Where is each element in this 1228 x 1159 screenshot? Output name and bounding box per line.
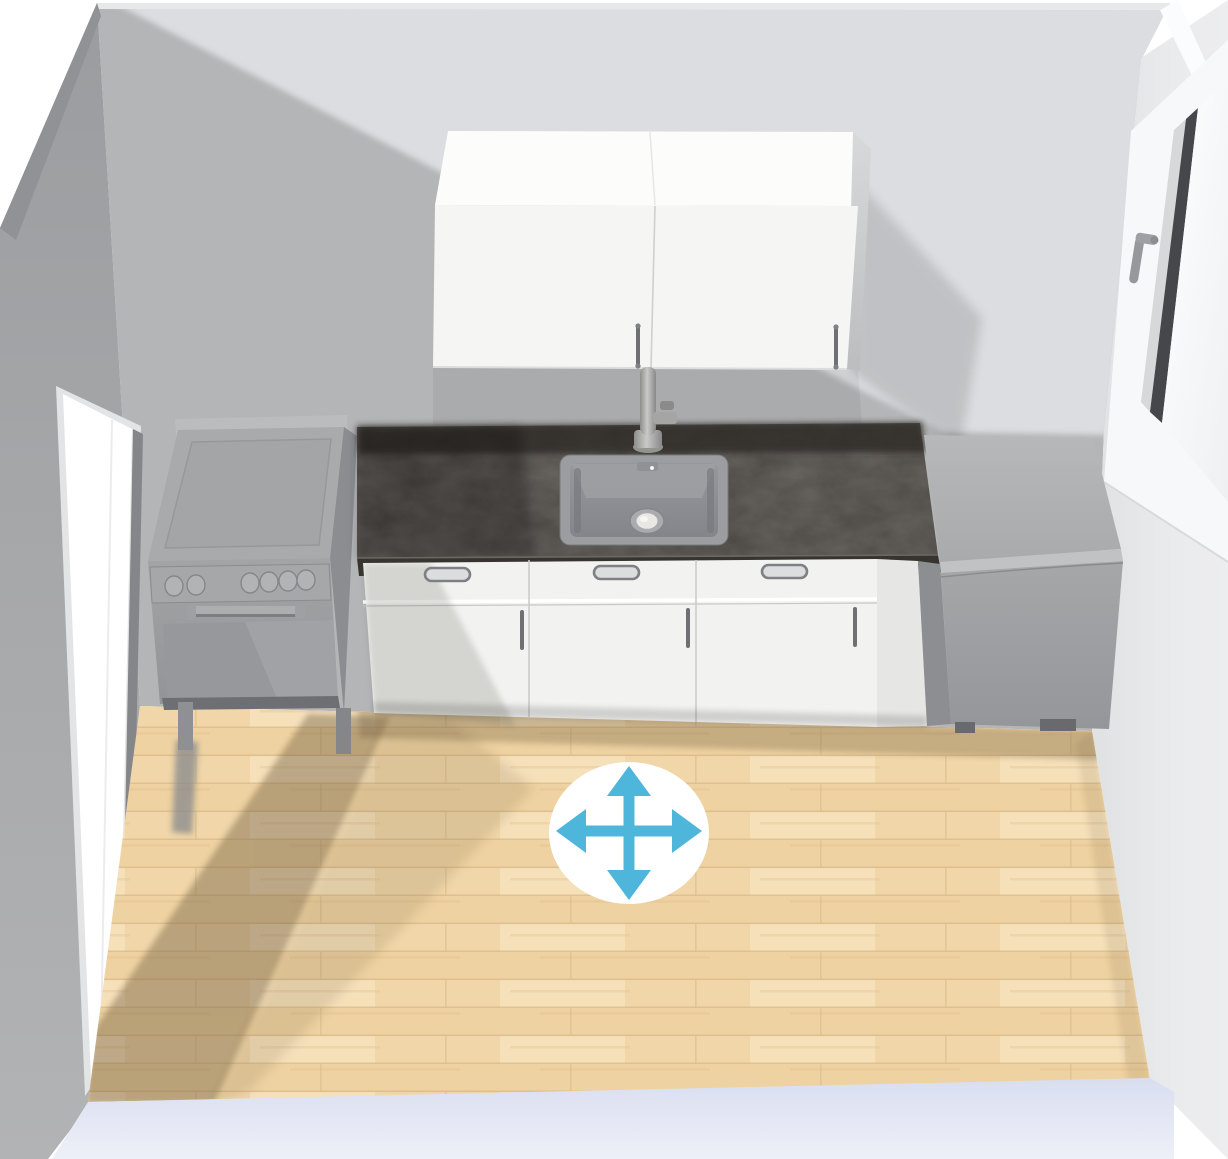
wall-cabinet-handle-right[interactable] (833, 324, 838, 369)
countertop-left-shade (357, 426, 536, 558)
wall-cabinet-front (433, 205, 858, 369)
control-knob (260, 572, 278, 592)
faucet-spout-arm (653, 412, 677, 424)
door-handle (520, 610, 524, 650)
range-cooktop-recess (165, 439, 331, 548)
faucet-column (640, 367, 656, 435)
wall-top-edge (96, 1, 1172, 10)
sink[interactable] (560, 455, 728, 545)
sink-overflow (637, 462, 658, 471)
sink-groove-right (707, 468, 714, 533)
control-knob (187, 575, 205, 595)
door-handle (686, 608, 690, 648)
range-leg-right (336, 708, 351, 754)
faucet-lever (660, 401, 674, 410)
refrigerator-foot-left (955, 722, 975, 733)
control-knob (297, 570, 315, 590)
room-view (0, 0, 1228, 1159)
sink-groove-left (574, 468, 581, 533)
refrigerator-top (924, 435, 1121, 562)
move-cursor[interactable] (549, 762, 709, 904)
wall-cabinet[interactable] (433, 131, 871, 371)
control-knob (279, 571, 297, 591)
range-leg-left (178, 702, 193, 750)
refrigerator-foot-right (1040, 719, 1076, 731)
base-cabinet-run[interactable] (363, 559, 927, 727)
drawer-handle (425, 568, 470, 581)
wall-cabinet-top (435, 131, 858, 206)
control-knob (165, 576, 183, 596)
refrigerator[interactable] (918, 435, 1123, 733)
sink-overflow-dot (650, 466, 654, 470)
control-knob (241, 573, 259, 593)
range-cooker[interactable] (148, 415, 357, 754)
refrigerator-door (941, 561, 1123, 729)
drawer-handle (594, 566, 639, 579)
door-handle (853, 607, 857, 647)
sink-drain (630, 509, 664, 534)
drawer-handle (762, 565, 807, 578)
wall-cabinet-handle-left[interactable] (635, 323, 640, 368)
